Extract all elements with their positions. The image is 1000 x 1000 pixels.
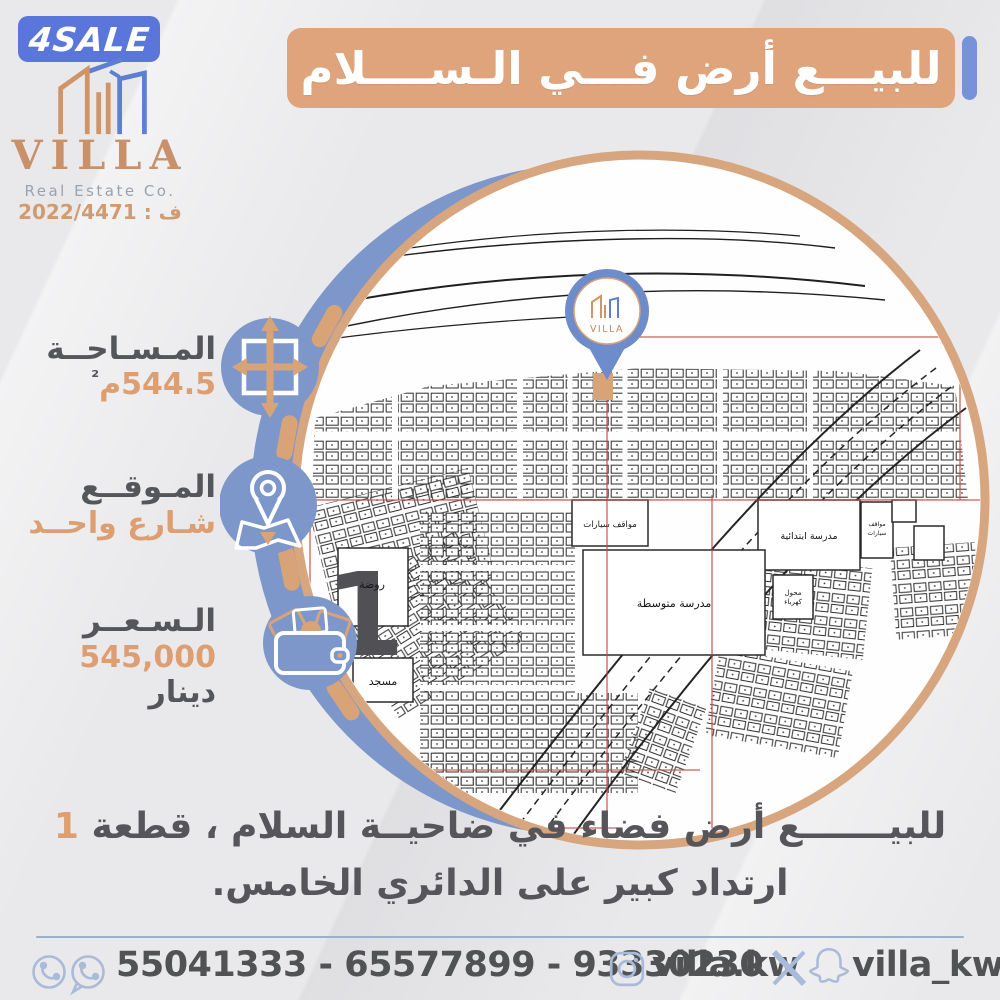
- area-value-sup: ²: [91, 367, 99, 388]
- phone-circle-icon: [34, 957, 65, 988]
- brand-name: VILLA: [5, 132, 195, 179]
- snapchat-icon: [806, 944, 852, 990]
- title-banner: للبيـــع أرض فـــي الـســــلام: [287, 28, 955, 108]
- primary-school-label: مدرسة ابتدائية: [780, 531, 837, 542]
- middle-school-label: مدرسة متوسطة: [637, 597, 712, 610]
- whatsapp-icon: [73, 957, 104, 993]
- highlighted-plot: [593, 373, 613, 400]
- substation-label-a: محول: [785, 589, 802, 597]
- price-value-unit: دينار: [149, 675, 216, 710]
- price-icon: [263, 596, 357, 690]
- social-handle: villa_kw: [852, 945, 1000, 985]
- phone-icons: [30, 948, 114, 996]
- area-label: المـسـاحــة: [20, 331, 216, 367]
- title-banner-text: للبيـــع أرض فـــي الـســــلام: [300, 42, 941, 95]
- area-value-number: 544.5م: [99, 367, 216, 402]
- map: 1 روضة مسجد مواقف سيارات مدرسة ابتدائية …: [220, 128, 1000, 872]
- description-plot-number: 1: [54, 806, 79, 847]
- location-icon: [220, 456, 317, 554]
- location-value: شـارع واحــد: [20, 506, 216, 541]
- parking-label-1: مواقف سيارات: [583, 520, 637, 530]
- price-value-number: 545,000: [79, 640, 216, 675]
- area-value: 544.5م²: [20, 367, 216, 402]
- description: للبيـــــــع أرض فضاء في ضاحيــة السلام …: [0, 798, 1000, 912]
- pin-brand-text: VILLA: [590, 324, 624, 335]
- kindergarten-label: روضة: [359, 578, 385, 591]
- price-label: الـسـعــر: [20, 603, 216, 639]
- instagram-icon: [608, 950, 646, 988]
- description-line-2: ارتداد كبير على الدائري الخامس.: [0, 855, 1000, 912]
- brand-tagline: Real Estate Co.: [5, 182, 195, 200]
- villa-buildings-icon: [40, 56, 165, 136]
- parking-label-2a: مواقف: [868, 521, 885, 528]
- price-value: 545,000 دينار: [20, 640, 216, 710]
- footer-divider: [36, 936, 964, 938]
- substation-label-b: كهرباء: [784, 598, 802, 606]
- parking-label-2b: سيارات: [868, 530, 887, 537]
- real-estate-poster: 4SALE VILLA Real Estate Co. ف : 2022/447…: [0, 0, 1000, 1000]
- mosque-label: مسجد: [369, 675, 398, 688]
- description-line-1: للبيـــــــع أرض فضاء في ضاحيــة السلام …: [0, 798, 1000, 855]
- x-twitter-icon: [766, 948, 810, 988]
- banner-accent-bar: [962, 36, 977, 100]
- location-label: المـوقــع: [20, 469, 216, 505]
- brand-license-number: ف : 2022/4471: [5, 200, 195, 224]
- description-line-1-text: للبيـــــــع أرض فضاء في ضاحيــة السلام …: [92, 806, 947, 847]
- 4sale-logo-text: 4SALE: [27, 20, 152, 59]
